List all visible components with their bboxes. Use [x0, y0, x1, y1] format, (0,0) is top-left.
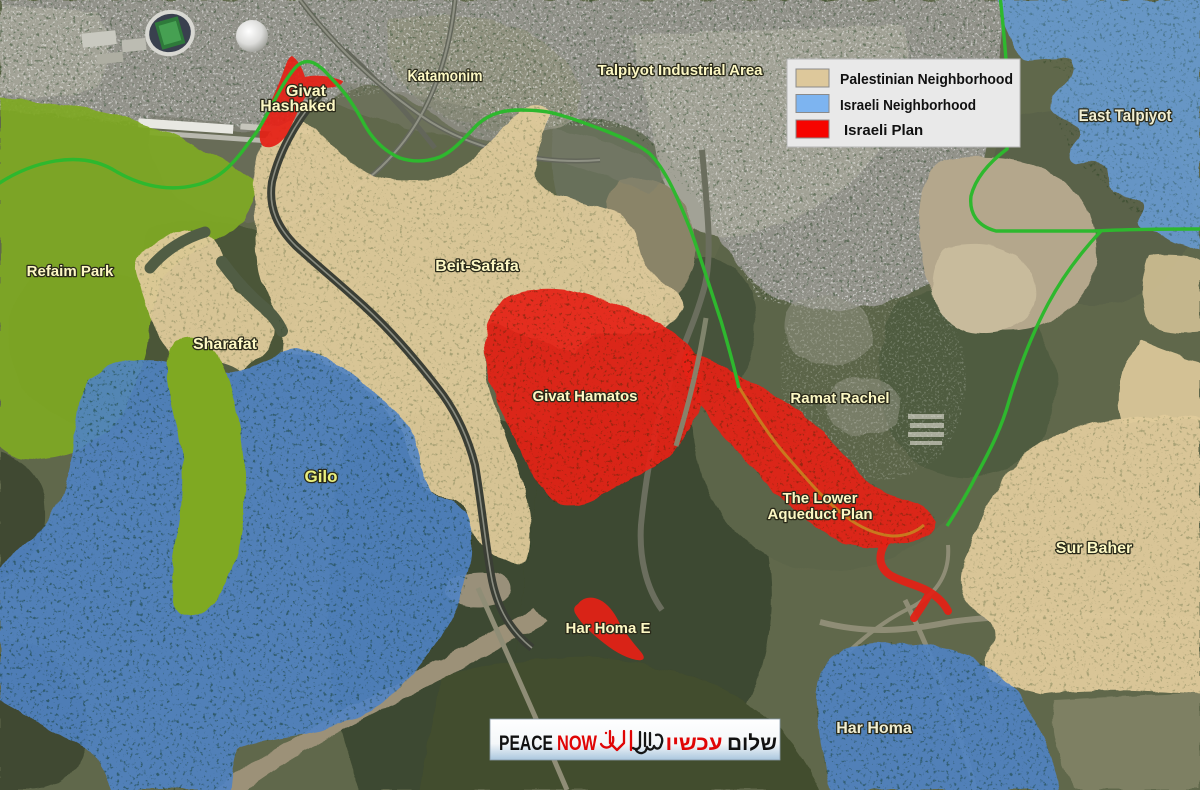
svg-text:Palestinian Neighborhood: Palestinian Neighborhood	[840, 71, 1013, 88]
svg-text:Sharafat: Sharafat	[193, 336, 258, 353]
svg-text:Talpiyot Industrial Area: Talpiyot Industrial Area	[597, 62, 763, 79]
svg-text:עכשיו: עכשיו	[666, 732, 723, 755]
svg-text:שלום: שלום	[727, 732, 777, 755]
svg-text:Sur Baher: Sur Baher	[1056, 540, 1132, 557]
svg-text:Har Homa E: Har Homa E	[565, 620, 650, 637]
svg-text:PEACE: PEACE	[499, 732, 553, 755]
svg-text:Israeli Plan: Israeli Plan	[844, 122, 923, 139]
svg-text:The Lower: The Lower	[782, 490, 857, 507]
svg-text:Gilo: Gilo	[304, 467, 337, 486]
svg-text:Katamonim: Katamonim	[408, 68, 483, 85]
svg-text:Givat Hamatos: Givat Hamatos	[532, 388, 637, 405]
svg-text:Har Homa: Har Homa	[836, 720, 912, 737]
svg-text:Aqueduct Plan: Aqueduct Plan	[767, 506, 872, 523]
svg-text:Israeli Neighborhood: Israeli Neighborhood	[840, 97, 976, 114]
svg-text:Beit-Safafa: Beit-Safafa	[435, 258, 519, 275]
svg-text:Hashaked: Hashaked	[260, 98, 336, 115]
svg-text:NOW: NOW	[557, 732, 597, 755]
svg-text:Ramat Rachel: Ramat Rachel	[790, 390, 889, 407]
svg-text:East Talpiyot: East Talpiyot	[1079, 106, 1172, 125]
svg-text:Refaim Park: Refaim Park	[27, 263, 114, 280]
